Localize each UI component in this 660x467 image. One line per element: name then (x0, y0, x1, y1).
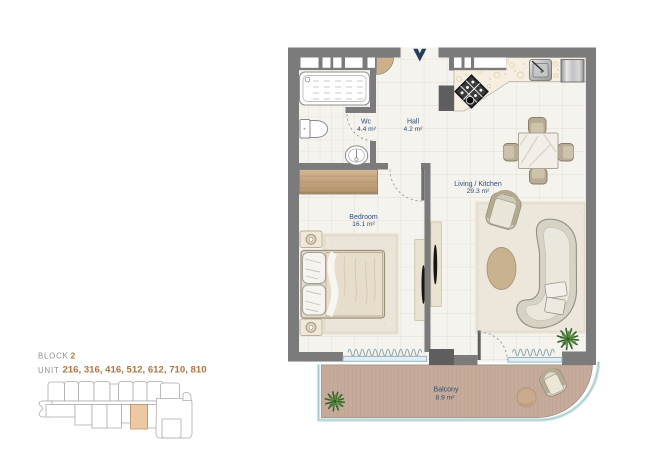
svg-text:Hall: Hall (407, 119, 420, 126)
svg-text:Balcony: Balcony (434, 387, 459, 394)
svg-text:UNIT: UNIT (38, 366, 60, 375)
svg-text:29.3 m²: 29.3 m² (467, 188, 490, 195)
svg-text:4.2 m²: 4.2 m² (404, 126, 424, 133)
svg-text:BLOCK: BLOCK (38, 352, 69, 361)
svg-text:Living / Kitchen: Living / Kitchen (454, 181, 502, 188)
svg-text:8.9 m²: 8.9 m² (436, 395, 456, 402)
svg-text:Wc: Wc (361, 119, 372, 126)
svg-text:16.1 m²: 16.1 m² (352, 221, 375, 228)
svg-text:4.4 m²: 4.4 m² (357, 126, 377, 133)
svg-text:Bedroom: Bedroom (349, 214, 378, 221)
svg-text:216, 316, 416, 512, 612, 710,: 216, 316, 416, 512, 612, 710, 810 (63, 365, 207, 376)
svg-text:2: 2 (71, 351, 76, 361)
